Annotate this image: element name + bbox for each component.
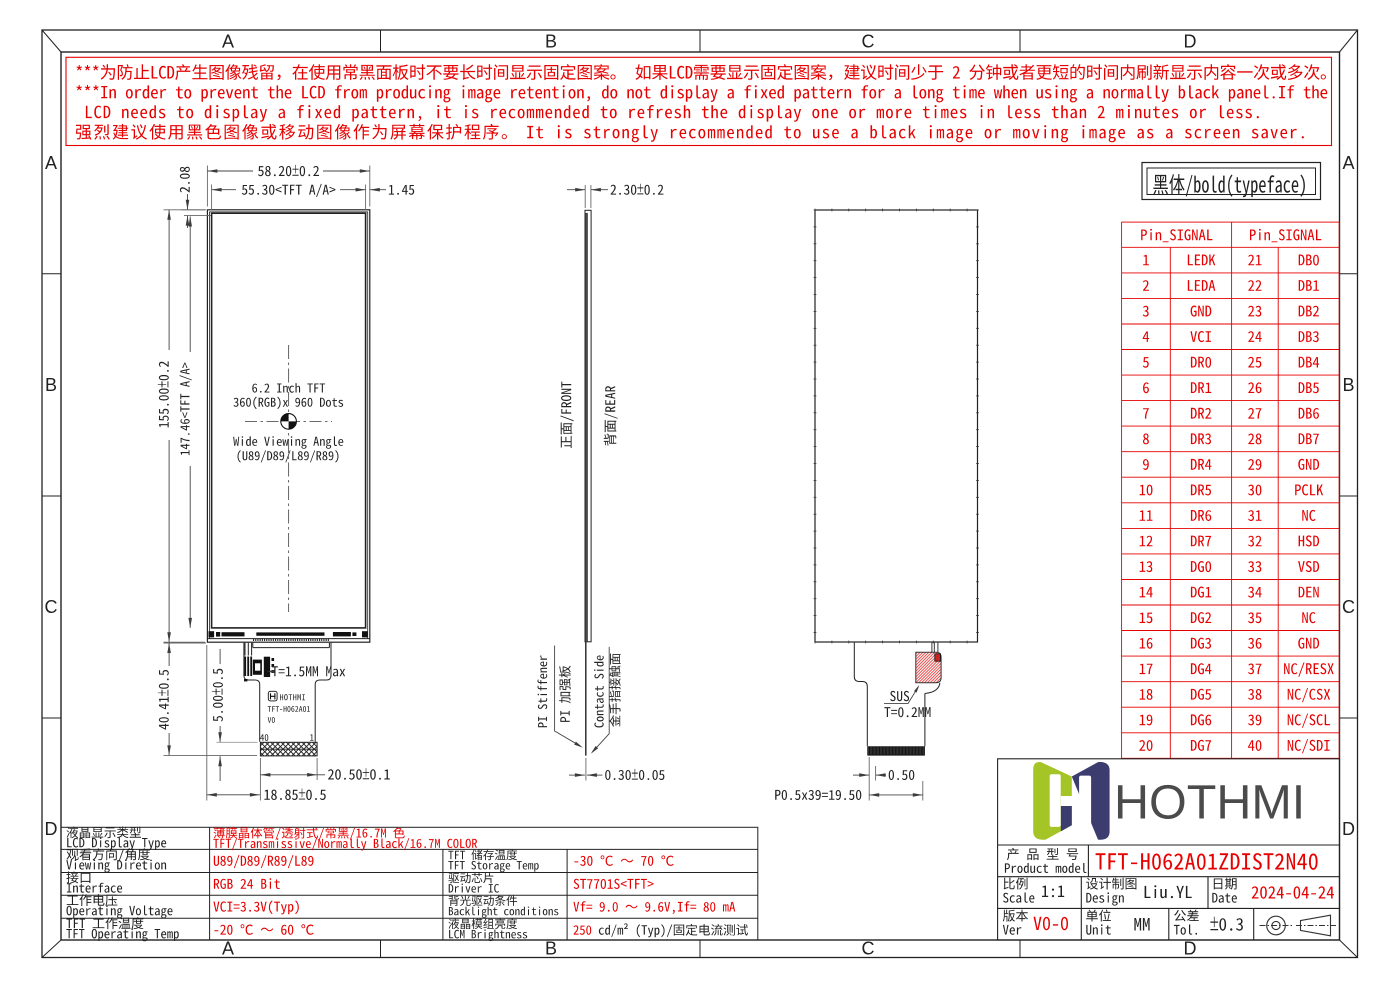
svg-text:B: B [45,375,57,395]
svg-text:B: B [1342,375,1354,395]
svg-text:B: B [545,939,557,959]
svg-text:D: D [45,819,58,839]
svg-text:B: B [545,32,557,52]
svg-text:C: C [45,597,58,617]
svg-text:C: C [862,939,875,959]
svg-text:D: D [1184,939,1197,959]
svg-text:A: A [222,32,234,52]
svg-text:HOTHMI: HOTHMI [1114,776,1305,830]
svg-text:C: C [862,32,875,52]
svg-text:A: A [222,939,234,959]
svg-text:D: D [1342,819,1355,839]
svg-text:A: A [1342,153,1354,173]
svg-text:C: C [1342,597,1355,617]
svg-text:A: A [45,153,57,173]
svg-text:D: D [1184,32,1197,52]
